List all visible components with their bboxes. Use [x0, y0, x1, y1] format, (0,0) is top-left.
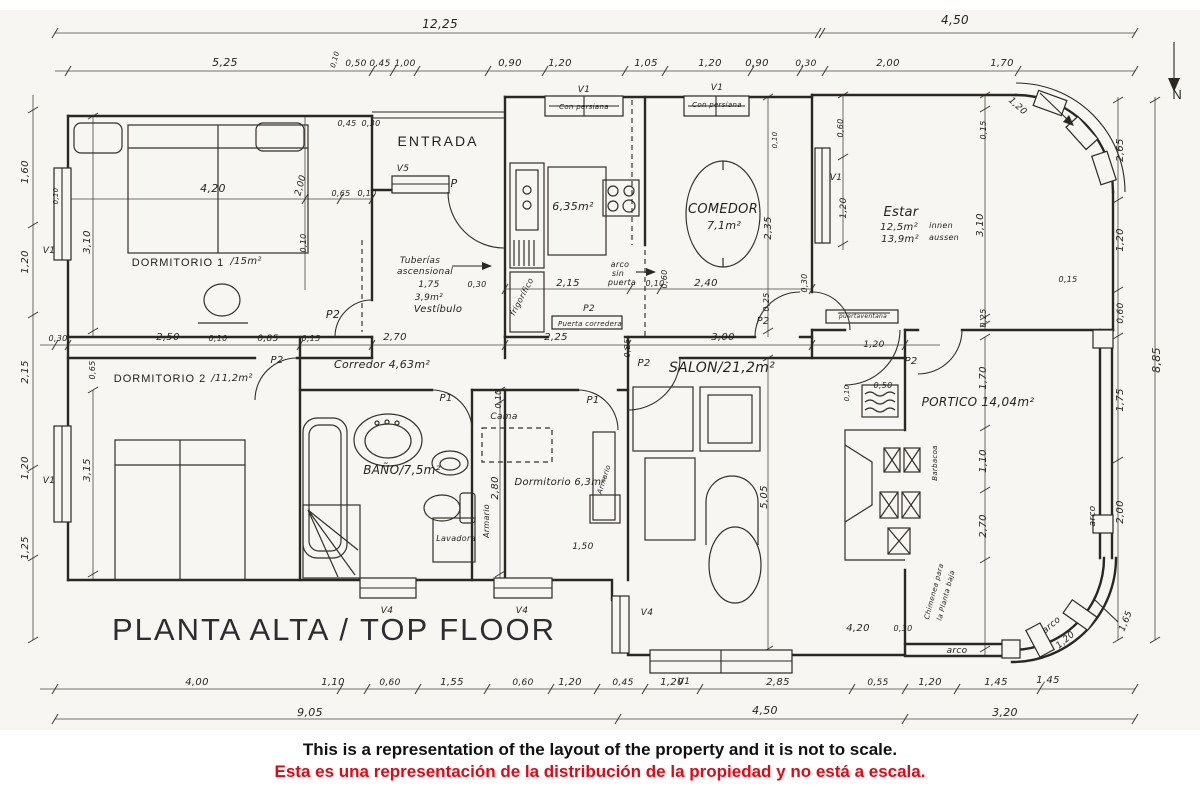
dim: 0,30: [467, 280, 486, 289]
dim-bottom: 2,85: [766, 677, 789, 688]
dim: 0,10: [52, 187, 60, 204]
note-arco-2: sin: [612, 269, 624, 278]
door-label: P2: [326, 308, 340, 321]
dim: 1,50: [572, 542, 593, 552]
room-area-dormitorio2: /11,2m²: [210, 373, 253, 384]
dim-bottom: 0,45: [612, 678, 633, 688]
dim-top: 1,05: [634, 58, 657, 69]
disclaimer-english: This is a representation of the layout o…: [0, 740, 1200, 760]
dim-left: 1,25: [20, 536, 31, 559]
note-tuberias-2: ascensional: [397, 267, 453, 277]
dim-left: 1,20: [20, 250, 31, 273]
dim-bottom: 1,20: [558, 677, 581, 688]
dim: 3,10: [975, 213, 986, 236]
dim: 0,15: [1058, 275, 1077, 284]
dim-bottom: 1,55: [440, 677, 463, 688]
dim: 0,10: [357, 189, 376, 198]
room-label-portico: PORTICO 14,04m²: [922, 395, 1035, 409]
dim-top: 5,25: [212, 56, 238, 69]
dim-left: 1,20: [20, 456, 31, 479]
dim-left: 1,60: [20, 160, 31, 183]
window-note: Con persiana: [692, 101, 742, 109]
dim-bottom: 0,60: [379, 678, 400, 688]
dim: 0,10: [299, 233, 308, 252]
dim-bottom-overall: 4,50: [752, 704, 778, 717]
dim: 1,20: [839, 197, 849, 218]
dim: 2,35: [763, 216, 774, 239]
dim: 0,45: [337, 119, 356, 128]
dim: 2,80: [490, 476, 501, 499]
door-note-corredera: Puerta corredera: [558, 320, 622, 328]
door-label: P2: [905, 356, 918, 367]
room-label-estar: Estar: [884, 205, 920, 220]
note-cama: Cama: [490, 412, 517, 422]
window-label: V1: [711, 83, 723, 93]
room-area-dormitorio1: /15m²: [229, 256, 261, 267]
dim-overall-top-right: 4,50: [941, 13, 969, 27]
dim: 2,15: [556, 278, 579, 289]
dim-top: 2,00: [876, 58, 899, 69]
dim-bottom-overall: 3,20: [992, 706, 1018, 719]
note-arco-bottom: arco: [947, 646, 968, 656]
dim: 2,70: [978, 514, 989, 537]
dim: 3,15: [82, 458, 93, 481]
dim: 0,10: [843, 384, 851, 401]
dim-mid: 2,70: [383, 332, 406, 343]
window-label: V1: [678, 677, 690, 687]
dim: 4,20: [846, 623, 869, 634]
dim-top: 0,30: [795, 59, 816, 69]
dim: 0,10: [771, 131, 779, 148]
window-label: V1: [578, 85, 590, 95]
dim: 0,25: [979, 308, 988, 327]
note-tuberias-1: Tuberías: [400, 256, 440, 266]
dim-top: 1,20: [698, 58, 721, 69]
dim: 0,60: [836, 118, 845, 137]
dim-mid: 2,25: [544, 332, 567, 343]
room-area-vestibulo: 3,9m²: [415, 293, 443, 303]
dim-bottom: 1,10: [321, 677, 344, 688]
door-label: P1: [587, 395, 600, 406]
door-label: P: [451, 177, 458, 190]
plan-title: PLANTA ALTA / TOP FLOOR: [112, 612, 556, 648]
dim: 0,30: [361, 119, 380, 128]
room-label-dormitorio1: DORMITORIO 1: [132, 257, 224, 269]
door-note-puertaventana: puertaventana: [838, 313, 887, 320]
dim-mid: 0,15: [301, 334, 320, 343]
note-lavadora: Lavadora: [436, 534, 476, 543]
dim-bottom: 0,55: [867, 678, 888, 688]
dim: 0,65: [331, 189, 350, 198]
door-label: P2: [757, 316, 770, 327]
dim: 0,50: [873, 381, 892, 390]
dim-right: 1,20: [1115, 228, 1126, 251]
dim: 0,25: [762, 292, 771, 311]
dim-left: 2,15: [20, 360, 31, 383]
dim-top: 1,00: [394, 59, 415, 69]
door-label: P2: [583, 304, 595, 314]
door-label: P2: [271, 355, 284, 366]
room-label-comedor: COMEDOR: [688, 202, 758, 217]
room-area-comedor: 7,1m²: [707, 219, 741, 232]
room-area-estar-1: 12,5m²: [880, 222, 918, 233]
room-label-bano: BAÑO/7,5m²: [363, 462, 441, 477]
dim-top: 0,50: [345, 59, 366, 69]
dim-top: 1,20: [548, 58, 571, 69]
dim-bottom: 4,00: [185, 677, 208, 688]
dim: 0,60: [660, 269, 669, 288]
room-label-corredor: Corredor 4,63m²: [334, 358, 430, 371]
room-label-vestibulo: Vestíbulo: [414, 303, 463, 315]
dim-top: 0,45: [369, 59, 390, 69]
window-label: V1: [830, 173, 842, 183]
dim-mid: 2,50: [156, 332, 179, 343]
note-barbacoa: Barbacoa: [931, 445, 939, 481]
note-arco-wall: arco: [1088, 505, 1098, 526]
dim-mid: 0,10: [208, 334, 227, 343]
door-label: P2: [638, 358, 651, 369]
room-area-cocina: 6,35m²: [552, 200, 594, 213]
dim-overall-top-left: 12,25: [422, 17, 458, 31]
disclaimer-spanish: Esta es una representación de la distrib…: [0, 762, 1200, 782]
dim-mid: 0,30: [48, 334, 67, 343]
dim: 1,10: [978, 449, 989, 472]
room-label-dormitorio3: Dormitorio 6,3m²: [514, 477, 605, 488]
north-label: N: [1172, 87, 1183, 102]
dim-top: 0,90: [498, 58, 521, 69]
dim: 0,30: [893, 624, 912, 633]
dim-bottom: 1,45: [984, 677, 1007, 688]
dim-bottom: 0,60: [512, 678, 533, 688]
dim: 4,20: [200, 182, 226, 195]
floor-plan-drawing: 12,254,505,250,100,500,451,000,901,201,0…: [0, 0, 1200, 800]
room-area-estar-2: 13,9m²: [881, 234, 919, 245]
window-label: V1: [43, 476, 55, 486]
dim-right: 0,60: [1116, 302, 1126, 323]
dim: 0,30: [800, 273, 809, 292]
room-note-estar-2: aussen: [929, 233, 959, 242]
door-label: P1: [440, 393, 453, 404]
dim-mid: 0,85: [257, 334, 278, 344]
room-label-entrada: ENTRADA: [398, 133, 479, 149]
dim: 1,75: [418, 280, 439, 290]
dim-right: 1,75: [1115, 388, 1126, 411]
dim: 3,10: [82, 230, 93, 253]
dim-right-overall: 8,85: [1150, 347, 1163, 373]
room-label-salon: SALON/21,2m²: [669, 360, 775, 376]
dim-right: 2,65: [1115, 138, 1126, 161]
window-label: V5: [397, 164, 409, 174]
dim: 2,40: [694, 278, 717, 289]
dim-door-swing: 1,20: [863, 340, 884, 350]
dim-bottom: 1,20: [918, 677, 941, 688]
note-armario-left: Armario: [482, 504, 491, 539]
dim: 0,15: [979, 120, 988, 139]
window-label: V4: [641, 608, 653, 618]
dim-mid: 3,00: [711, 332, 734, 343]
window-note: Con persiana: [559, 103, 609, 111]
dim-top: 0,90: [745, 58, 768, 69]
dim: 0,65: [88, 360, 97, 379]
dim-top: 1,70: [990, 58, 1013, 69]
room-label-dormitorio2: DORMITORIO 2: [114, 373, 206, 385]
dim: 1,70: [978, 366, 989, 389]
floorplan-page: 12,254,505,250,100,500,451,000,901,201,0…: [0, 0, 1200, 800]
note-arco-3: puerta: [607, 278, 636, 287]
dim: 5,05: [759, 485, 770, 508]
dim-right: 2,00: [1115, 500, 1126, 523]
dim-mid: 0,25: [623, 338, 632, 357]
dim: 0,10: [494, 389, 503, 408]
dim-bottom-overall: 9,05: [297, 706, 323, 719]
portico-column: [1093, 330, 1113, 348]
window-label: V1: [43, 246, 55, 256]
dim: 1,45: [1036, 675, 1059, 686]
portico-column: [1002, 640, 1020, 658]
room-note-estar-1: innen: [929, 221, 953, 230]
note-arco-1: arco: [611, 260, 630, 269]
